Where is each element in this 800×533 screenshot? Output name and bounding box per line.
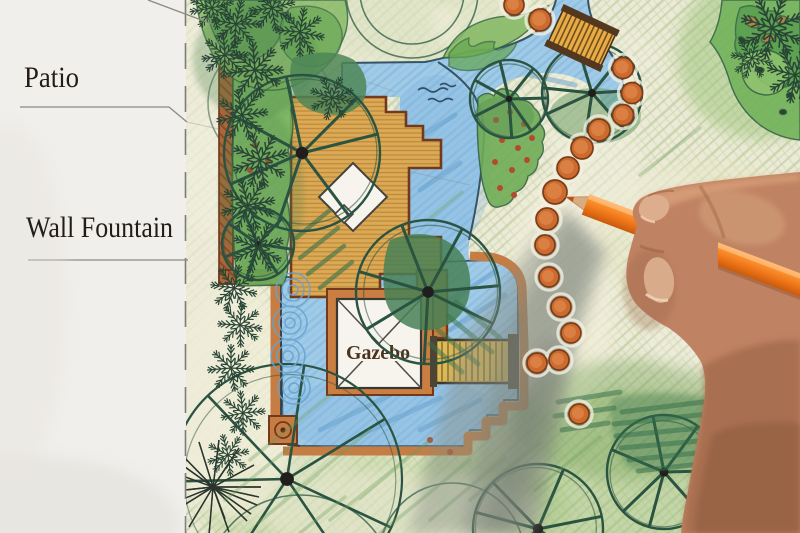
svg-text:Wall Fountain: Wall Fountain xyxy=(26,211,173,244)
svg-text:Patio: Patio xyxy=(24,61,79,94)
